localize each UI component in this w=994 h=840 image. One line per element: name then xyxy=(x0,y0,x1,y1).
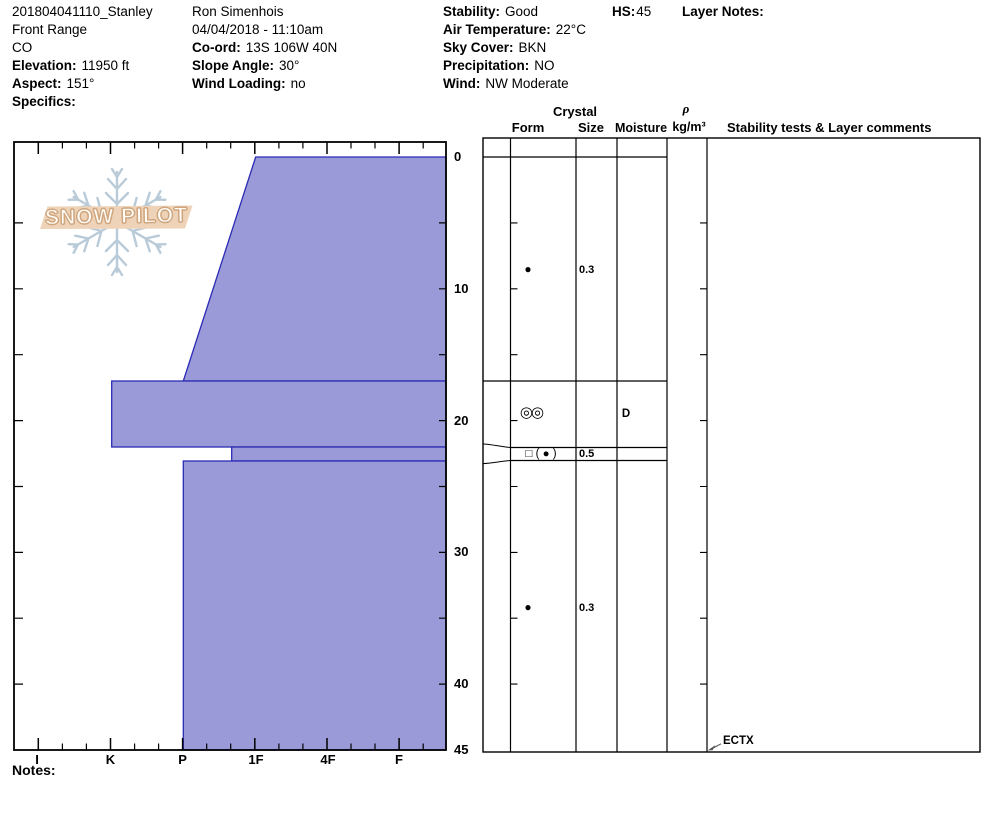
row3-grain-form: □ ( ● ) xyxy=(525,445,556,463)
depth-label-40: 40 xyxy=(454,676,468,691)
row3-grain-size: 0.5 xyxy=(579,447,594,461)
row1-grain-size: 0.3 xyxy=(579,263,594,277)
layer-4-polygon xyxy=(183,461,446,750)
density-units-header: kg/m³ xyxy=(672,119,705,135)
stability-tests-header: Stability tests & Layer comments xyxy=(727,120,931,136)
row2-moisture: D xyxy=(622,407,630,421)
hardness-layers xyxy=(112,157,446,750)
notes-label: Notes: xyxy=(12,762,56,778)
depth-label-10: 10 xyxy=(454,281,468,296)
layer-2-polygon xyxy=(112,381,446,447)
size-header: Size xyxy=(578,120,604,136)
depth-ticks-left xyxy=(14,223,23,684)
thin-layer-connector-lines xyxy=(483,444,511,464)
layer-1-polygon xyxy=(183,157,446,381)
table-depth-ticks-left xyxy=(511,223,518,684)
depth-label-20: 20 xyxy=(454,413,468,428)
hardness-label-k: K xyxy=(106,752,115,767)
crystal-header: Crystal xyxy=(553,104,597,120)
depth-label-0: 0 xyxy=(454,149,461,164)
top-axis-minor-ticks xyxy=(62,142,423,149)
table-depth-ticks-right xyxy=(700,223,707,684)
top-axis-major-ticks xyxy=(38,142,399,154)
hardness-label-4f: 4F xyxy=(320,752,335,767)
row1-grain-form: ● xyxy=(524,260,531,278)
depth-label-45: 45 xyxy=(454,742,468,757)
density-rho-header: ρ xyxy=(683,101,690,117)
hardness-label-p: P xyxy=(178,752,187,767)
row2-grain-form: ◎◎ xyxy=(520,404,542,422)
table-frame xyxy=(483,138,980,752)
hardness-label-f: F xyxy=(395,752,403,767)
snowpilot-logo-text: SNOW PILOT xyxy=(41,204,192,231)
snowpilot-profile-page: 201804041110_Stanley Front Range CO Elev… xyxy=(0,0,994,840)
form-header: Form xyxy=(512,120,545,136)
layer-3-polygon xyxy=(232,447,446,461)
row4-grain-size: 0.3 xyxy=(579,601,594,615)
ectx-arrow xyxy=(708,744,721,751)
hardness-label-1f: 1F xyxy=(248,752,263,767)
depth-label-30: 30 xyxy=(454,544,468,559)
stability-test-result: ECTX xyxy=(723,735,754,748)
row4-grain-form: ● xyxy=(524,598,531,616)
moisture-header: Moisture xyxy=(615,120,667,136)
